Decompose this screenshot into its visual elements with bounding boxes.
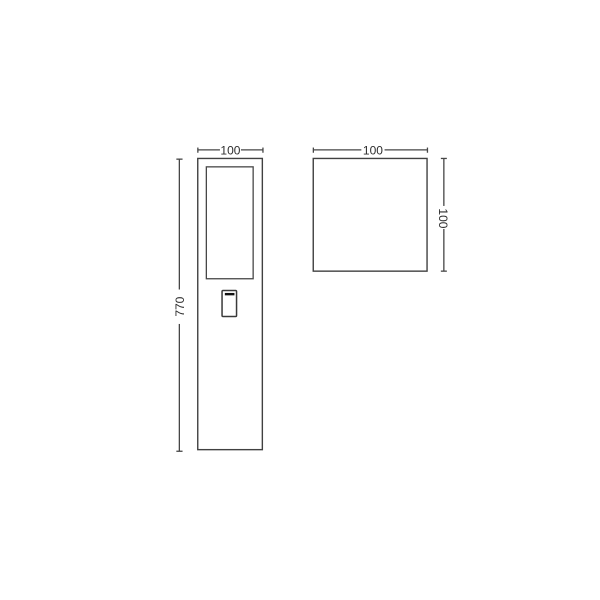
svg-text:100: 100 (436, 208, 450, 228)
svg-text:100: 100 (220, 144, 240, 158)
svg-text:770: 770 (173, 296, 187, 316)
svg-text:100: 100 (363, 144, 383, 158)
